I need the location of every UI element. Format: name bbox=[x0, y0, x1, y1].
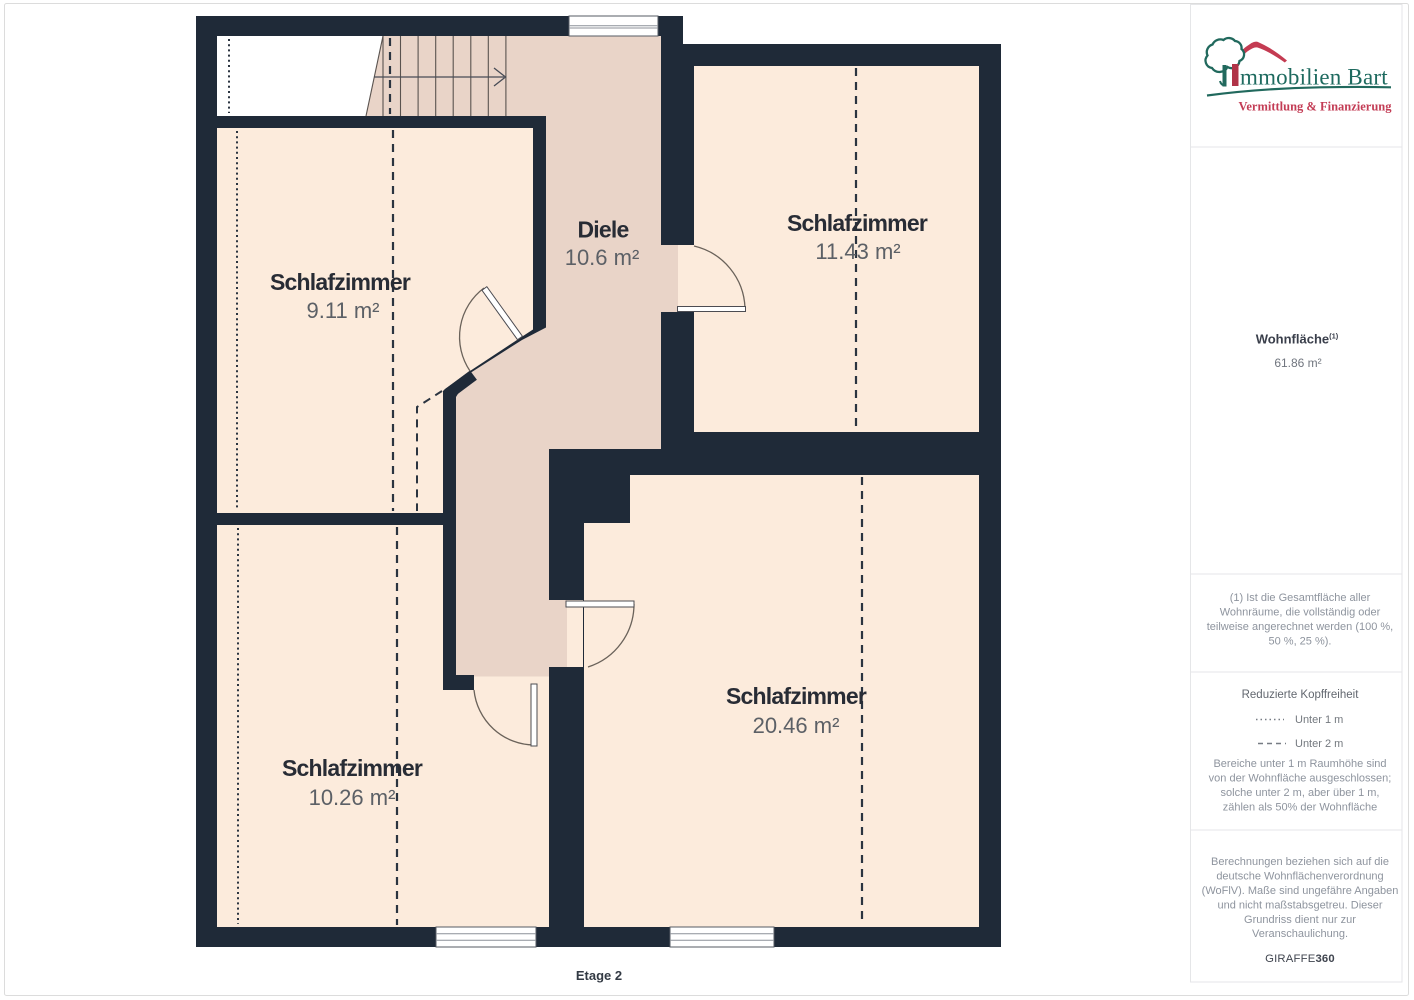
svg-text:(1) Ist die Gesamtfläche aller: (1) Ist die Gesamtfläche aller bbox=[1230, 592, 1371, 604]
svg-text:solche unter 2 m, aber über 1: solche unter 2 m, aber über 1 m, bbox=[1221, 787, 1380, 799]
svg-text:50 %, 25 %).: 50 %, 25 %). bbox=[1269, 636, 1332, 648]
svg-text:deutsche Wohnflächenverordnung: deutsche Wohnflächenverordnung bbox=[1216, 871, 1383, 883]
svg-text:von der Wohnfläche ausgeschlos: von der Wohnfläche ausgeschlossen; bbox=[1209, 773, 1392, 785]
svg-text:Reduzierte Kopffreiheit: Reduzierte Kopffreiheit bbox=[1242, 689, 1360, 701]
svg-text:Schlafzimmer: Schlafzimmer bbox=[787, 210, 928, 236]
svg-text:11.43 m²: 11.43 m² bbox=[815, 239, 900, 264]
svg-text:mmobilien Bart: mmobilien Bart bbox=[1240, 65, 1388, 90]
svg-text:Vermittlung & Finanzierung: Vermittlung & Finanzierung bbox=[1238, 100, 1392, 114]
svg-text:Unter 2 m: Unter 2 m bbox=[1295, 738, 1343, 750]
svg-text:und nicht maßstabsgetreu. Dies: und nicht maßstabsgetreu. Dieser bbox=[1217, 900, 1382, 912]
svg-text:Wohnfläche(1): Wohnfläche(1) bbox=[1256, 332, 1339, 347]
svg-text:Berechnungen beziehen sich auf: Berechnungen beziehen sich auf die bbox=[1211, 856, 1389, 868]
svg-text:Wohnräume, die vollständig ode: Wohnräume, die vollständig oder bbox=[1220, 607, 1381, 619]
svg-text:Veranschaulichung.: Veranschaulichung. bbox=[1252, 928, 1348, 940]
svg-text:61.86 m²: 61.86 m² bbox=[1274, 356, 1321, 370]
svg-text:Schlafzimmer: Schlafzimmer bbox=[282, 755, 423, 781]
svg-text:20.46 m²: 20.46 m² bbox=[753, 713, 840, 738]
svg-text:10.6 m²: 10.6 m² bbox=[565, 245, 640, 270]
svg-text:10.26 m²: 10.26 m² bbox=[309, 785, 396, 810]
svg-text:Bereiche unter 1 m Raumhöhe si: Bereiche unter 1 m Raumhöhe sind bbox=[1213, 758, 1386, 770]
svg-text:Diele: Diele bbox=[578, 217, 629, 243]
svg-text:GIRAFFE360: GIRAFFE360 bbox=[1265, 953, 1335, 965]
svg-text:zählen als 50% der Wohnfläche: zählen als 50% der Wohnfläche bbox=[1223, 802, 1378, 814]
svg-text:Grundriss dient nur zur: Grundriss dient nur zur bbox=[1244, 914, 1356, 926]
svg-text:Etage 2: Etage 2 bbox=[576, 968, 622, 983]
svg-text:Schlafzimmer: Schlafzimmer bbox=[726, 683, 867, 709]
svg-text:Schlafzimmer: Schlafzimmer bbox=[270, 269, 411, 295]
svg-text:(WoFlV). Maße sind ungefähre A: (WoFlV). Maße sind ungefähre Angaben bbox=[1202, 885, 1399, 897]
svg-text:Unter 1 m: Unter 1 m bbox=[1295, 714, 1343, 726]
svg-text:teilweise angerechnet werden (: teilweise angerechnet werden (100 %, bbox=[1207, 621, 1394, 633]
svg-text:9.11 m²: 9.11 m² bbox=[307, 298, 380, 323]
